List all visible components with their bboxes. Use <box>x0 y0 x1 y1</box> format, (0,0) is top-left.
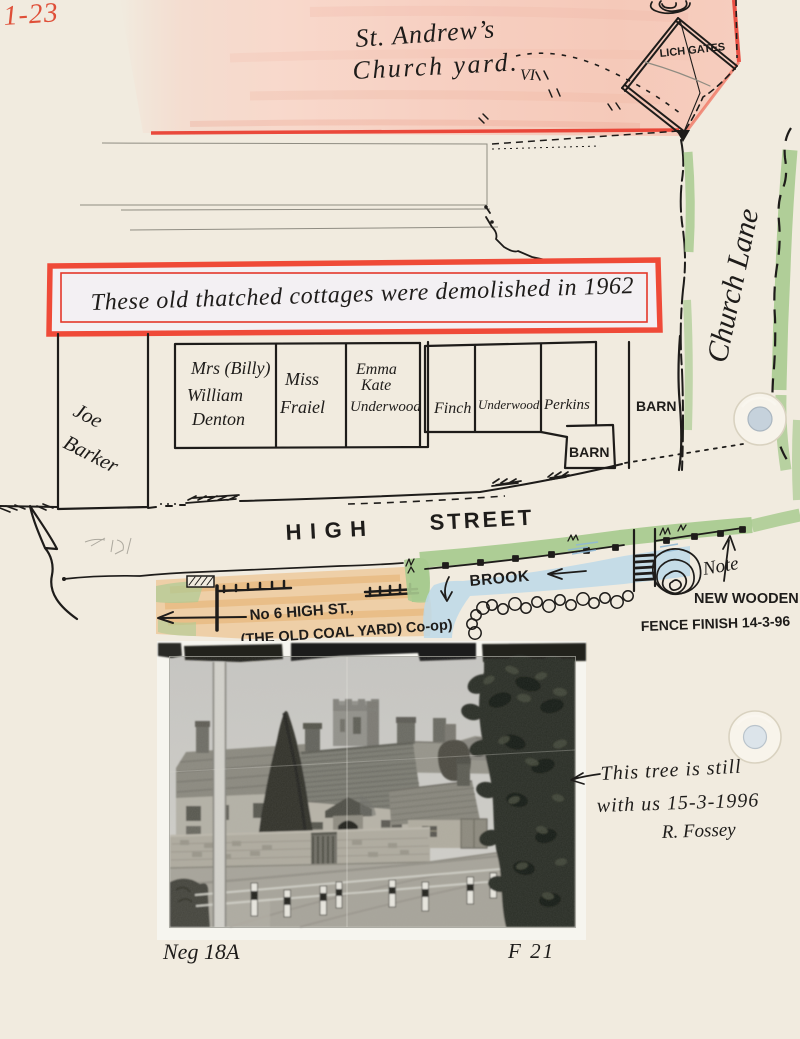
svg-text:F 21: F 21 <box>507 939 555 963</box>
svg-text:BARN: BARN <box>636 398 676 414</box>
svg-text:BARN: BARN <box>569 444 609 460</box>
svg-text:1-23: 1-23 <box>2 0 59 32</box>
svg-text:Denton: Denton <box>191 409 245 429</box>
svg-text:Emma: Emma <box>355 361 397 378</box>
svg-text:VI: VI <box>520 67 536 84</box>
svg-text:Mrs (Billy): Mrs (Billy) <box>190 358 270 379</box>
svg-text:Neg 18A: Neg 18A <box>162 939 240 964</box>
svg-text:Kate: Kate <box>360 377 391 394</box>
svg-text:William: William <box>187 385 243 405</box>
svg-text:Finch: Finch <box>433 400 471 417</box>
svg-text:R. Fossey: R. Fossey <box>660 819 736 843</box>
svg-text:Perkins: Perkins <box>543 397 590 413</box>
svg-text:Underwood: Underwood <box>478 397 540 412</box>
svg-text:NEW WOODEN: NEW WOODEN <box>694 591 799 607</box>
svg-text:Miss: Miss <box>284 369 319 389</box>
svg-text:Underwood: Underwood <box>350 399 421 415</box>
svg-text:HIGH: HIGH <box>285 515 375 545</box>
svg-text:Fraiel: Fraiel <box>279 397 325 417</box>
